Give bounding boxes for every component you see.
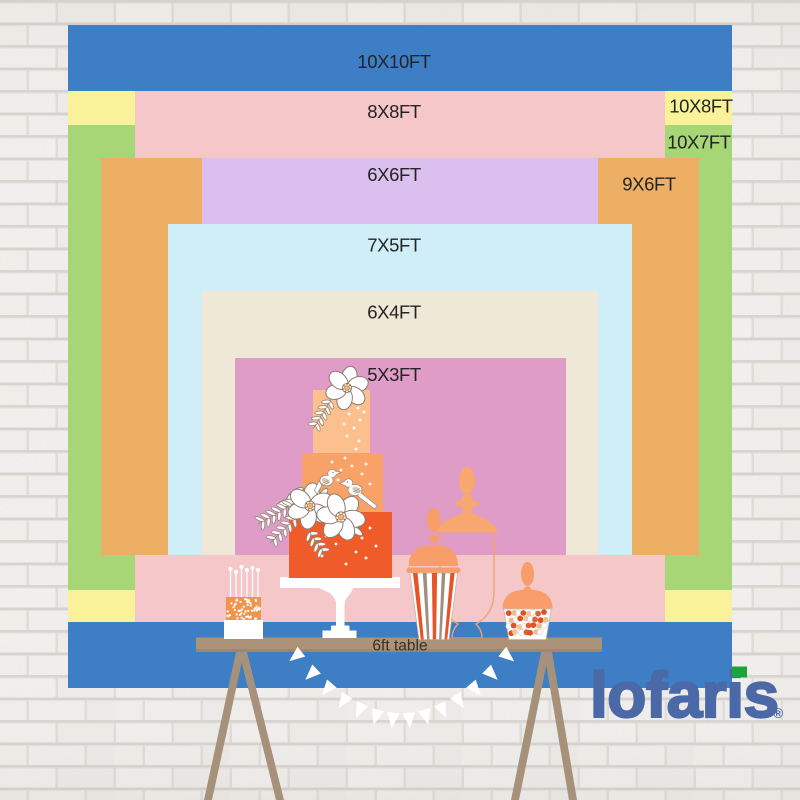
svg-text:7X5FT: 7X5FT — [367, 235, 421, 256]
svg-text:10X10FT: 10X10FT — [357, 51, 430, 72]
svg-text:6ft table: 6ft table — [372, 638, 427, 655]
svg-text:10X8FT: 10X8FT — [669, 96, 733, 117]
svg-text:10X7FT: 10X7FT — [667, 132, 731, 153]
svg-text:6X4FT: 6X4FT — [367, 302, 421, 323]
svg-text:6X6FT: 6X6FT — [367, 164, 421, 185]
svg-text:5X3FT: 5X3FT — [367, 364, 421, 385]
svg-text:®: ® — [773, 705, 784, 721]
svg-text:lofaris: lofaris — [590, 659, 779, 731]
svg-text:8X8FT: 8X8FT — [367, 101, 421, 122]
svg-text:9X6FT: 9X6FT — [622, 174, 676, 195]
